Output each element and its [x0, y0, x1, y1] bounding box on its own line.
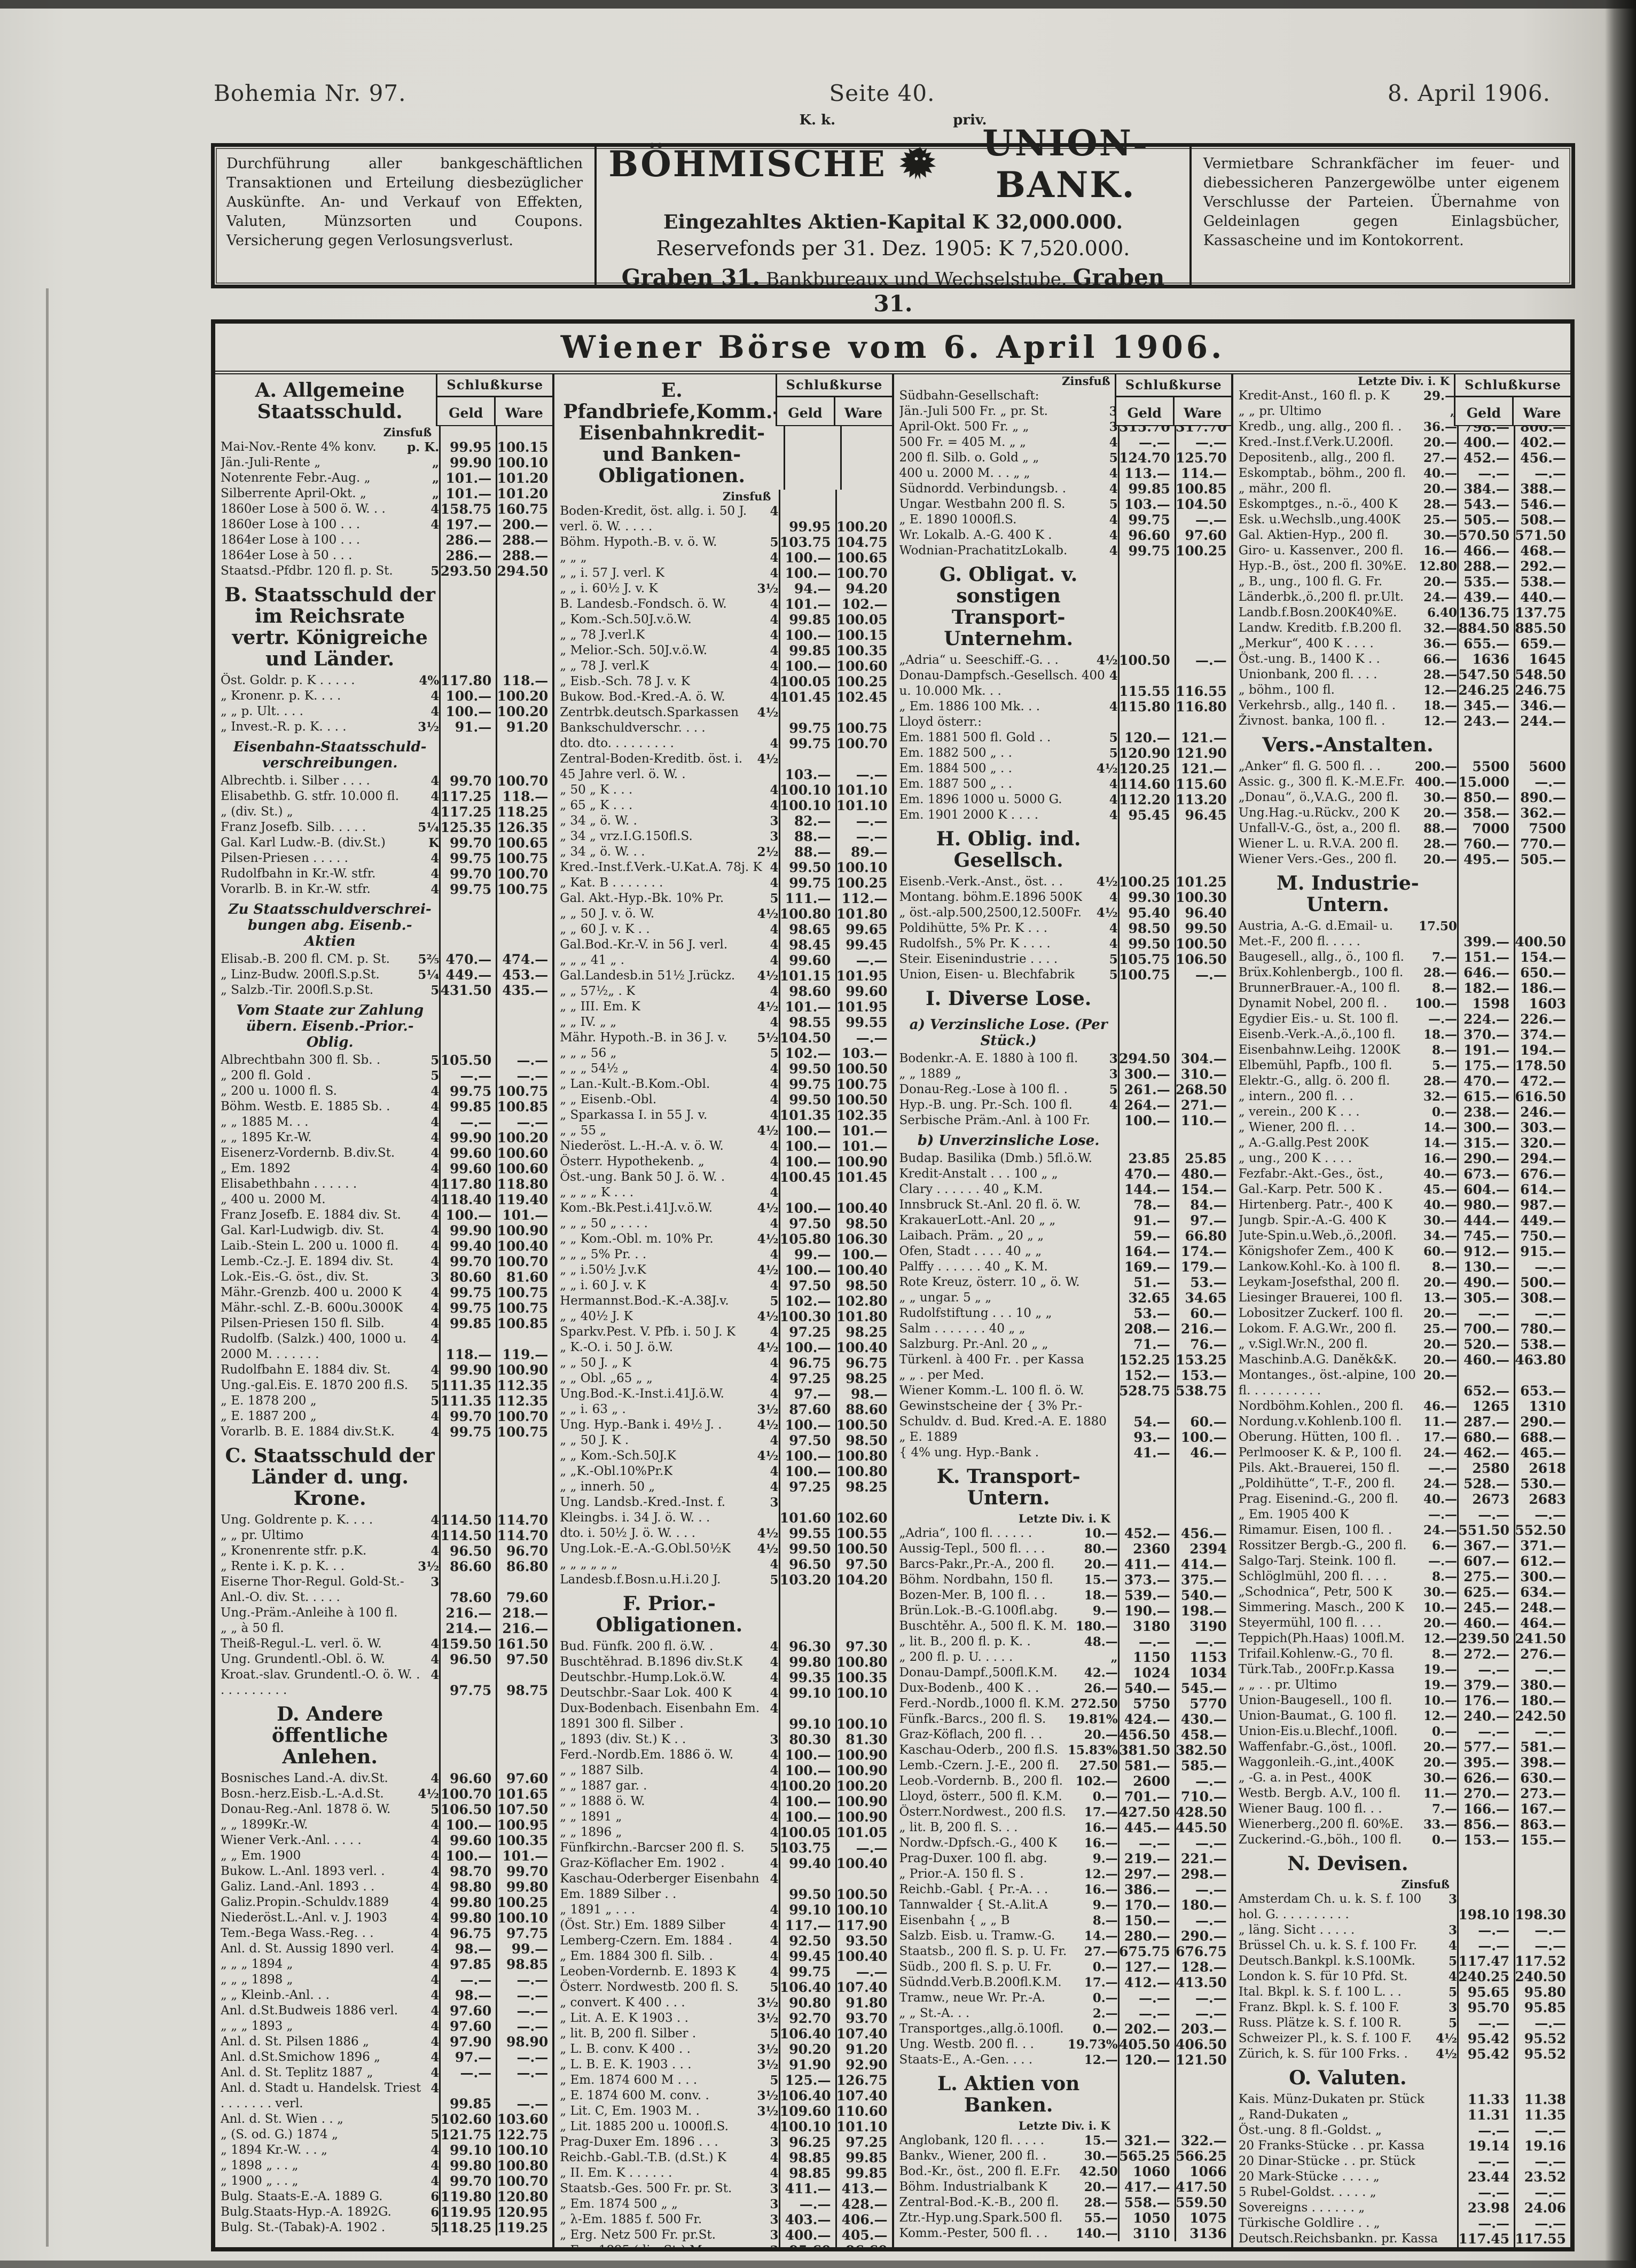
geld-value: 98.85: [779, 2165, 835, 2181]
quote-row: „ „ pr. Ultimo4114.50114.70: [215, 1528, 552, 1543]
rate-or-dividend: 4: [770, 1464, 778, 1479]
geld-value: 470.—: [439, 952, 496, 967]
geld-value: 98.50: [1118, 921, 1175, 936]
quote-row: Leykam-Josefsthal, 200 fl.20.—490.—500.—: [1233, 1275, 1570, 1290]
geld-value: 97.50: [779, 1216, 835, 1231]
rate-or-dividend: 4: [430, 1910, 439, 1926]
rate-or-dividend: 4½: [757, 1123, 779, 1139]
security-name: 1860er Lose à 100 . . .: [221, 517, 360, 532]
rate-or-dividend: 28.—: [1423, 1073, 1457, 1089]
rate-or-dividend: 19.—: [1423, 1677, 1457, 1693]
rate-or-dividend: 4½: [757, 1309, 779, 1324]
quote-row: „ lit. B, 200 fl. S. . .16.—445.—445.50: [894, 1820, 1231, 1835]
quote-row: „ „ innerh. 50 „497.2598.25: [554, 1479, 891, 1495]
ware-value: 95.52: [1514, 2031, 1570, 2046]
security-name: Wiener Baug. 100 fl. . .: [1239, 1801, 1382, 1817]
quote-row: Fünfk.-Barcs., 200 fl. S.19.81%424.—430.…: [894, 1712, 1231, 1727]
rate-or-dividend: 28.—: [1423, 965, 1457, 980]
security-name: Böhm. Industrialbank K: [899, 2179, 1048, 2195]
ware-value: —.—: [1514, 2154, 1570, 2169]
rate-or-dividend: 15.—: [1084, 2133, 1118, 2148]
security-name: Anl. d. St. Pilsen 1886 „: [221, 2034, 369, 2050]
quote-row: 20 Franks-Stücke . . pr. Kassa19.1419.16: [1233, 2138, 1570, 2154]
geld-value: 100.—: [439, 704, 496, 719]
ware-value: 100.25: [1175, 543, 1231, 559]
ware-value: —.—: [1514, 1306, 1570, 1321]
ware-value: 308.—: [1514, 1290, 1570, 1306]
ware-value: 107.40: [835, 1980, 892, 1995]
ware-value: 107.40: [835, 2088, 892, 2104]
geld-value: 98.80: [439, 1879, 496, 1895]
quote-row: BrunnerBrauer.-A., 100 fl.8.—182.—186.—: [1233, 980, 1570, 996]
geld-value: 367.—: [1457, 1538, 1514, 1553]
quote-row: „ „ 1887 gar. .4100.20100.20: [554, 1778, 891, 1794]
rate-or-dividend: 4: [770, 627, 778, 643]
geld-value: —.—: [1118, 2006, 1175, 2021]
ware-value: 322.—: [1175, 2133, 1231, 2148]
security-name: Wiener Verk.-Anl. . . . .: [221, 1833, 362, 1848]
geld-value: 97.60: [439, 2003, 496, 2019]
geld-value: 412.—: [1118, 1975, 1175, 1990]
security-name: „ lit. B, 200 fl. S. . .: [899, 1820, 1018, 1835]
geld-value: 96.60: [439, 1771, 496, 1786]
geld-value: 570.50: [1457, 528, 1514, 543]
rate-or-dividend: 4: [770, 1092, 778, 1108]
security-name: „ Melior.-Sch. 50J.v.ö.W.: [560, 643, 707, 658]
security-name: Bosnisches Land.-A. div.St.: [221, 1771, 388, 1786]
geld-value: 99.70: [439, 773, 496, 789]
security-name: Salgo-Tarj. Steink. 100 fl.: [1239, 1553, 1397, 1569]
ware-value: 100.90: [496, 1223, 552, 1238]
rate-or-dividend: 5: [1109, 497, 1118, 512]
ware-value: 102.60: [835, 1495, 892, 1526]
ware-value: —.—: [1514, 774, 1570, 790]
quote-row: Prag-Duxer Em. 1896 . . .396.2597.25: [554, 2134, 891, 2150]
quote-row: „ 200 fl. Gold .5—.——.—: [215, 1068, 552, 1084]
quote-row: Nordung.v.Kohlenb.100 fl.11.—287.—290.—: [1233, 1414, 1570, 1430]
geld-value: 856.—: [1457, 1817, 1514, 1832]
geld-value: 680.—: [1457, 1430, 1514, 1445]
geld-value: 99.95: [779, 504, 835, 535]
geld-value: 100.—: [779, 627, 835, 643]
ad-capital-line: Eingezahltes Aktien-Kapital K 32,000.000…: [608, 211, 1178, 233]
quote-row: Wiener L. u. R.V.A. 200 fl.28.—760.—770.…: [1233, 836, 1570, 852]
security-name: Wr. Lokalb. A.-G. 400 K .: [899, 528, 1052, 543]
ware-value: 100.90: [835, 1154, 892, 1170]
geld-value: 114.60: [1118, 776, 1175, 792]
geld-value: 51.—: [1118, 1275, 1175, 1290]
geld-value: 444.—: [1457, 1213, 1514, 1228]
rate-or-dividend: 4: [430, 1223, 439, 1238]
geld-value: 300.—: [1118, 1066, 1175, 1082]
security-name: Anl. d. St. Teplitz 1887 „: [221, 2065, 373, 2081]
rate-or-dividend: 32.—: [1423, 1089, 1457, 1104]
ware-value: —.—: [835, 1964, 892, 1980]
ware-value: 100.70: [835, 566, 892, 581]
ware-value: 101.95: [835, 999, 892, 1015]
quote-row: Maschinb.A.G. Daněk&K.20.—460.—463.80: [1233, 1352, 1570, 1368]
ware-value: 100.15: [835, 627, 892, 643]
quote-row: Ung.-gal.Eis. E. 1870 200 fl.S.5111.3511…: [215, 1378, 552, 1393]
quote-row: London k. S. für 10 Pfd. St.4240.25240.5…: [1233, 1969, 1570, 1984]
security-name: Landb.f.Bosn.200K40%E.: [1239, 605, 1397, 621]
security-name: Transportges.,allg.ö.100fl.: [899, 2021, 1064, 2037]
ware-value: 107.40: [835, 2026, 892, 2042]
quote-row: Südnordd. Verbindungsb. .499.85100.85: [894, 481, 1231, 497]
quote-row: „Donau“, ö.,V.A.G., 200 fl.30.—850.—890.…: [1233, 790, 1570, 805]
security-name: Landesb.f.Bosn.u.H.i.20 J.: [560, 1572, 721, 1588]
geld-value: 100.50: [1118, 653, 1175, 668]
geld-value: 460.—: [1457, 1352, 1514, 1368]
ware-value: 98.25: [835, 1479, 892, 1495]
rate-or-dividend: 4: [430, 851, 439, 866]
geld-value: 105.80: [779, 1231, 835, 1247]
ware-value: —.—: [1175, 653, 1231, 668]
quote-row: Tem.-Bega Wass.-Reg. . .496.7597.75: [215, 1926, 552, 1941]
ware-value: 100.10: [496, 2143, 552, 2158]
security-name: KrakauerLott.-Anl. 20 „ „: [899, 1213, 1056, 1228]
geld-value: 93.—: [1118, 1430, 1175, 1445]
rate-or-dividend: 4: [770, 1433, 778, 1448]
geld-value: 315.—: [1457, 1135, 1514, 1151]
geld-value: 100.—: [779, 1747, 835, 1763]
rate-or-dividend: 4: [430, 2034, 439, 2050]
ware-value: 160.75: [496, 501, 552, 517]
ware-value: 66.80: [1175, 1228, 1231, 1244]
security-name: Egydier Eis.- u. St. 100 fl.: [1239, 1011, 1399, 1027]
geld-value: 399.—: [1457, 919, 1514, 949]
geld-value: —.—: [1118, 435, 1175, 450]
ware-value: 88.60: [835, 1402, 892, 1417]
section-header: Vers.-Anstalten.: [1233, 729, 1570, 759]
rate-or-dividend: 17.50: [1419, 919, 1457, 949]
geld-value: 208.—: [1118, 1321, 1175, 1337]
security-name: Em. 1881 500 fl. Gold . .: [899, 730, 1051, 745]
quote-row: Leoben-Vordernb. E. 1893 K499.75—.—: [554, 1964, 891, 1980]
rate-or-dividend: 20.—: [1084, 1727, 1118, 1743]
geld-value: 99.90: [439, 455, 496, 470]
ware-value: 99.—: [496, 1941, 552, 1957]
rate-or-dividend: 4: [430, 1957, 439, 1972]
quote-row: Türkenl. à 400 Fr. . per Kassa152.25153.…: [894, 1352, 1231, 1368]
quote-row: Öst.-ung. 8 fl.-Goldst. „—.——.—: [1233, 2123, 1570, 2138]
rate-or-dividend: 20.—: [1084, 1557, 1118, 1572]
quote-row: Ungar. Westbahn 200 fl. S.5103.—104.50: [894, 497, 1231, 512]
quote-row: Ung. Hyp.-Bank i. 49½ J. .4½100.—100.50: [554, 1417, 891, 1433]
ware-value: 110.—: [1175, 1113, 1231, 1128]
ware-value: 99.80: [496, 1879, 552, 1895]
ware-value: —.—: [1514, 1259, 1570, 1275]
rate-or-dividend: 5¼: [418, 967, 439, 983]
ware-value: —.—: [1175, 1990, 1231, 2006]
ware-value: 374.—: [1514, 1027, 1570, 1042]
quote-row: „ „ Em. 19004100.—101.—: [215, 1848, 552, 1864]
security-name: Ung.Lok.-E.-A.-G.Obl.50½K: [560, 1541, 731, 1557]
ware-value: 413.50: [1175, 1975, 1231, 1990]
ware-value: 91.20: [496, 719, 552, 735]
security-name: Tramw., neue Wr. Pr.-A.: [899, 1990, 1046, 2006]
quote-row: Bukow. Bod.-Kred.-A. ö. W.4101.45102.45: [554, 689, 891, 705]
quote-row: Wiener Vers.-Ges., 200 fl.20.—495.—505.—: [1233, 852, 1570, 867]
quote-row: „ Salzb.-Tir. 200fl.S.p.St.5431.50435.—: [215, 983, 552, 998]
geld-value: 270.—: [1457, 1786, 1514, 1801]
ware-value: 100.75: [835, 705, 892, 736]
ware-value: 198.—: [1175, 1603, 1231, 1619]
quote-row: Transportges.,allg.ö.100fl.0.—202.—203.—: [894, 2021, 1231, 2037]
quote-row: Eisenb.-Verk.-A.,ö.,100 fl.18.—370.—374.…: [1233, 1027, 1570, 1042]
security-name: Kred.-Inst.f.Verk.U.200fl.: [1239, 435, 1394, 450]
rate-or-dividend: 100.—: [1415, 996, 1457, 1011]
quote-row: Ofen, Stadt . . . . 40 „ „164.—174.—: [894, 1244, 1231, 1259]
quote-row: Živnost. banka, 100 fl. .12.—243.—244.—: [1233, 713, 1570, 729]
geld-value: 386.—: [1118, 1882, 1175, 1897]
ware-value: 81.30: [835, 1732, 892, 1747]
ware-value: 100.25: [835, 875, 892, 891]
geld-value: 100.10: [779, 782, 835, 798]
security-name: „ (S. od. G.) 1874 „: [221, 2127, 338, 2143]
rate-or-dividend: 4: [430, 2173, 439, 2189]
geld-value: 358.—: [1457, 805, 1514, 821]
quote-row: „ 1893 (div. St.) K . .380.3081.30: [554, 1732, 891, 1747]
rate-or-dividend: 17.—: [1084, 1804, 1118, 1820]
quote-row: „ intern., 200 fl. . .32.—615.—616.50: [1233, 1089, 1570, 1104]
rate-or-dividend: 30.—: [1423, 1584, 1457, 1600]
security-name: Pils. Akt.-Brauerei, 150 fl.: [1239, 1461, 1400, 1476]
quote-row: Zentral-Bod.-K.-B., 200 fl.28.—558.—559.…: [894, 2195, 1231, 2210]
rate-or-dividend: 24.—: [1423, 1523, 1457, 1538]
rate-or-dividend: 5: [1109, 967, 1118, 983]
security-name: Dux-Bodenbach. Eisenbahn Em. 1891 300 fl…: [560, 1701, 766, 1732]
security-name: „ Em. 1895 (div. St.) M: [560, 2243, 702, 2247]
rate-or-dividend: 13.—: [1423, 1290, 1457, 1306]
geld-value: 7000: [1457, 821, 1514, 836]
rate-or-dividend: 3½: [757, 2042, 779, 2057]
rate-or-dividend: 4: [430, 1285, 439, 1300]
security-name: Elisabethbahn . . . . . .: [221, 1176, 357, 1192]
security-name: Jute-Spin.u.Web.,ö.,200fl.: [1239, 1228, 1397, 1244]
quote-row: Landw. Kreditb. f.B.200 fl.32.—884.50885…: [1233, 621, 1570, 636]
ware-value: 100.50: [835, 1871, 892, 1902]
ware-value: 126.75: [835, 2073, 892, 2088]
rate-or-dividend: „: [432, 455, 439, 470]
security-name: „ Em. 1874 500 „ „: [560, 2196, 678, 2212]
quote-row: Elektr.-G., allg. ö. 200 fl.28.—470.—472…: [1233, 1073, 1570, 1089]
security-name: „ „ „ 5% Pr. . .: [560, 1247, 646, 1262]
security-name: Hyp.-B. ung. Pr.-Sch. 100 fl.: [899, 1097, 1073, 1113]
ware-value: 100.85: [1175, 481, 1231, 497]
geld-value: 97.90: [439, 2034, 496, 2050]
rate-or-dividend: 4½: [1097, 905, 1118, 921]
ware-value: 5600: [1514, 759, 1570, 774]
quote-row: Deutschbr.-Saar Lok. 400 K499.10100.10: [554, 1685, 891, 1701]
security-name: „ 200 fl. p. U. . . . .: [899, 1650, 1013, 1665]
ware-value: 98.50: [835, 1216, 892, 1231]
quote-row: Lok.-Eis.-G. öst., div. St.380.6081.60: [215, 1269, 552, 1285]
rate-or-dividend: 3: [770, 2227, 778, 2243]
ad-address-mid: Bankbureaux und Wechselstube.: [766, 269, 1067, 290]
rate-or-dividend: —.—: [1428, 1553, 1457, 1569]
security-name: „ „ „ 41 „ .: [560, 953, 624, 968]
quote-row: Rudolfb. (Salzk.) 400, 1000 u. 2000 M. .…: [215, 1331, 552, 1362]
rate-or-dividend: 4: [770, 674, 778, 689]
security-name: Em. 1901 2000 K . . . .: [899, 807, 1039, 823]
geld-value: 239.50: [1457, 1631, 1514, 1646]
rate-or-dividend: „: [1111, 1650, 1118, 1665]
security-name: Ung.Bod.-K.-Inst.i.41J.ö.W.: [560, 1386, 724, 1402]
security-name: „ E. 1878 200 „: [221, 1393, 317, 1409]
bank-title: BÖHMISCHE UNION-BANK.: [608, 122, 1178, 206]
geld-value: 103.20: [779, 1572, 835, 1588]
security-name: „ B., ung., 100 fl. G. Fr.: [1239, 574, 1382, 590]
geld-value: 95.70: [1457, 2000, 1514, 2015]
geld-value: 96.75: [779, 1355, 835, 1371]
quote-row: „Merkur“, 400 K . . . .36.—655.—659.—: [1233, 636, 1570, 652]
security-name: „ 65 „ K . . .: [560, 798, 632, 813]
rate-or-dividend: 4: [430, 1879, 439, 1895]
quote-row: Bukow. L.-Anl. 1893 verl. .498.7099.70: [215, 1864, 552, 1879]
geld-value: 652.—: [1457, 1368, 1514, 1399]
geld-value: 96.25: [779, 2134, 835, 2150]
quote-row: Anl. d. St. Wien . . „5102.60103.60: [215, 2112, 552, 2127]
geld-value: 111.35: [439, 1378, 496, 1393]
security-name: Elektr.-G., allg. ö. 200 fl.: [1239, 1073, 1390, 1089]
geld-value: 470.—: [1457, 1073, 1514, 1089]
security-name: Lemb.-Cz.-J. E. 1894 div. St.: [221, 1254, 394, 1269]
table-title: Wiener Börse vom 6. April 1906.: [215, 324, 1570, 374]
geld-value: 91.—: [439, 719, 496, 735]
rate-or-dividend: 4: [770, 1371, 778, 1386]
rate-or-dividend: 4½: [1097, 653, 1118, 668]
quote-row: „Anker“ fl. G. 500 fl. . .200.—55005600: [1233, 759, 1570, 774]
rate-or-dividend: 5: [1449, 2015, 1457, 2031]
ware-value: 101.10: [835, 782, 892, 798]
rate-or-dividend: 19.73%: [1068, 2037, 1118, 2052]
geld-value: [779, 1185, 835, 1200]
quote-row: Budap. Basilika (Dmb.) 5fl.ö.W.23.8525.8…: [894, 1151, 1231, 1166]
rate-or-dividend: 20.—: [1423, 1275, 1457, 1290]
quote-row: Kred.-Inst.f.Verk.U.200fl.20.—400.—402.—: [1233, 435, 1570, 450]
bank-title-part1: BÖHMISCHE: [608, 143, 887, 185]
quote-row: Fezfabr.-Akt.-Ges., öst.,40.—673.—676.—: [1233, 1166, 1570, 1182]
rate-or-dividend: 4: [430, 1543, 439, 1559]
geld-value: 581.—: [1118, 1758, 1175, 1773]
ware-value: 1075: [1175, 2210, 1231, 2226]
rate-or-dividend: 4: [770, 1108, 778, 1123]
geld-value: 99.60: [779, 953, 835, 968]
ware-value: —.—: [1175, 2006, 1231, 2021]
security-name: Franz. Bkpl. k. S. f. 100 F.: [1239, 2000, 1399, 2015]
ware-value: —.—: [835, 813, 892, 829]
geld-value: 604.—: [1457, 1182, 1514, 1197]
quote-row: „ „ 55 „4½100.—101.—: [554, 1123, 891, 1139]
quote-row: Eisenerz-Vordernb. B.div.St.499.60100.60: [215, 1145, 552, 1161]
security-name: Kredit-Anst., 160 fl. p. K: [1239, 388, 1390, 404]
rate-or-dividend: 4: [770, 1216, 778, 1231]
geld-value: 100.—: [1118, 1113, 1175, 1128]
ware-value: 122.75: [496, 2127, 552, 2143]
ware-value: 710.—: [1175, 1789, 1231, 1804]
security-name: Rudolfbahn in Kr.-W. stfr.: [221, 866, 375, 882]
ware-value: 101.10: [835, 798, 892, 813]
geld-value: 125.—: [779, 2073, 835, 2088]
rate-or-dividend: 3½: [757, 1995, 779, 2011]
ware-value: 126.35: [496, 820, 552, 835]
rate-or-dividend: 5: [1109, 450, 1118, 466]
security-name: Union-Baumat., G. 100 fl.: [1239, 1708, 1397, 1724]
rate-or-dividend: 3: [770, 1495, 778, 1526]
ware-value: 298.—: [1175, 1866, 1231, 1882]
rate-or-dividend: 4: [430, 2019, 439, 2034]
quote-row: „ „ „ 54½ „499.50100.50: [554, 1061, 891, 1077]
quote-row: Vorarlb. B. E. 1884 div.St.K.499.75100.7…: [215, 1424, 552, 1440]
geld-value: 99.—: [779, 1247, 835, 1262]
quote-row: Brüssel Ch. u. k. S. f. 100 Fr.4—.——.—: [1233, 1938, 1570, 1953]
ware-value: 101.—: [496, 1207, 552, 1223]
quote-row: Ztr.-Hyp.ung.Spark.500 fl.55.—10501075: [894, 2210, 1231, 2226]
ware-value: 612.—: [1514, 1553, 1570, 1569]
security-name: Palffy . . . . . . 40 „ K. M.: [899, 1259, 1048, 1275]
ware-value: 100.80: [496, 2158, 552, 2173]
geld-value: 520.—: [1457, 1337, 1514, 1352]
security-name: Rossitzer Bergb.-G., 200 fl.: [1239, 1538, 1407, 1553]
security-name: Ung.-gal.Eis. E. 1870 200 fl.S.: [221, 1378, 408, 1393]
geld-value: 15.000: [1457, 774, 1514, 790]
quote-row: Jute-Spin.u.Web.,ö.,200fl.34.—745.—750.—: [1233, 1228, 1570, 1244]
geld-value: 103.75: [779, 535, 835, 550]
quote-row: „ Rente i. K. p. K. . .3½86.6086.80: [215, 1559, 552, 1574]
rate-or-dividend: 5: [1449, 1984, 1457, 2000]
security-name: „ intern., 200 fl. . .: [1239, 1089, 1353, 1104]
security-name: Böhm. Nordbahn, 150 fl.: [899, 1572, 1053, 1588]
ware-value: 98.90: [496, 2034, 552, 2050]
ware-value: 161.50: [496, 1636, 552, 1652]
geld-value: 105.50: [439, 1053, 496, 1068]
rate-or-dividend: 4: [770, 566, 778, 581]
quote-row: „ Eisb.-Sch. 78 J. v. K4100.05100.25: [554, 674, 891, 689]
ware-value: 121.—: [1175, 761, 1231, 776]
geld-value: 152.—: [1118, 1368, 1175, 1383]
security-name: Kaschau-Oderb., 200 fl.S.: [899, 1743, 1059, 1758]
quote-row: Albrechtbahn 300 fl. Sb. .5105.50—.—: [215, 1053, 552, 1068]
ware-value: 101.45: [835, 1170, 892, 1185]
quote-row: Landesb.f.Bosn.u.H.i.20 J.5103.20104.20: [554, 1572, 891, 1588]
rate-or-dividend: 4: [1109, 776, 1118, 792]
rate-or-dividend: 4: [430, 1362, 439, 1378]
security-name: Ferd.-Nordb.Em. 1886 ö. W.: [560, 1747, 733, 1763]
quote-row: Anl. d. St. Teplitz 1887 „4—.——.—: [215, 2065, 552, 2081]
geld-value: 144.—: [1118, 1182, 1175, 1197]
security-name: Gewinst­scheine der { 3% Pr.-Schuldv. d.…: [899, 1399, 1118, 1430]
security-name: Bud. Fünfk. 200 fl. ö.W. .: [560, 1639, 713, 1654]
subsection-header: Vom Staate zur Zahlung übern. Eisenb.-Pr…: [215, 998, 552, 1053]
security-name: „ „ i. 60½ J. v. K: [560, 581, 657, 597]
ware-value: —.—: [1514, 1922, 1570, 1938]
quote-row: Union-Baugesell., 100 fl.10.—176.—180.—: [1233, 1693, 1570, 1708]
security-name: Brüx.Kohlenbergb., 100 fl.: [1239, 965, 1404, 980]
ware-value: 34.65: [1175, 1290, 1231, 1306]
security-name: Leykam-Josefsthal, 200 fl.: [1239, 1275, 1400, 1290]
geld-value: 120.—: [1118, 2052, 1175, 2068]
quote-row: „ verein., 200 K . . .0.—238.—246.—: [1233, 1104, 1570, 1120]
ware-value: 118.25: [496, 804, 552, 820]
geld-label: Geld: [1116, 397, 1173, 425]
security-name: Bukow. Bod.-Kred.-A. ö. W.: [560, 689, 725, 705]
geld-value: 452.—: [1118, 1526, 1175, 1541]
ware-value: 97.60: [496, 1771, 552, 1786]
geld-value: 379.—: [1457, 1677, 1514, 1693]
quote-row: Trifail.Kohlenw.-G., 70 fl.8.—272.—276.—: [1233, 1646, 1570, 1662]
security-name: Zentral-Bod.-K.-B., 200 fl.: [899, 2195, 1059, 2210]
